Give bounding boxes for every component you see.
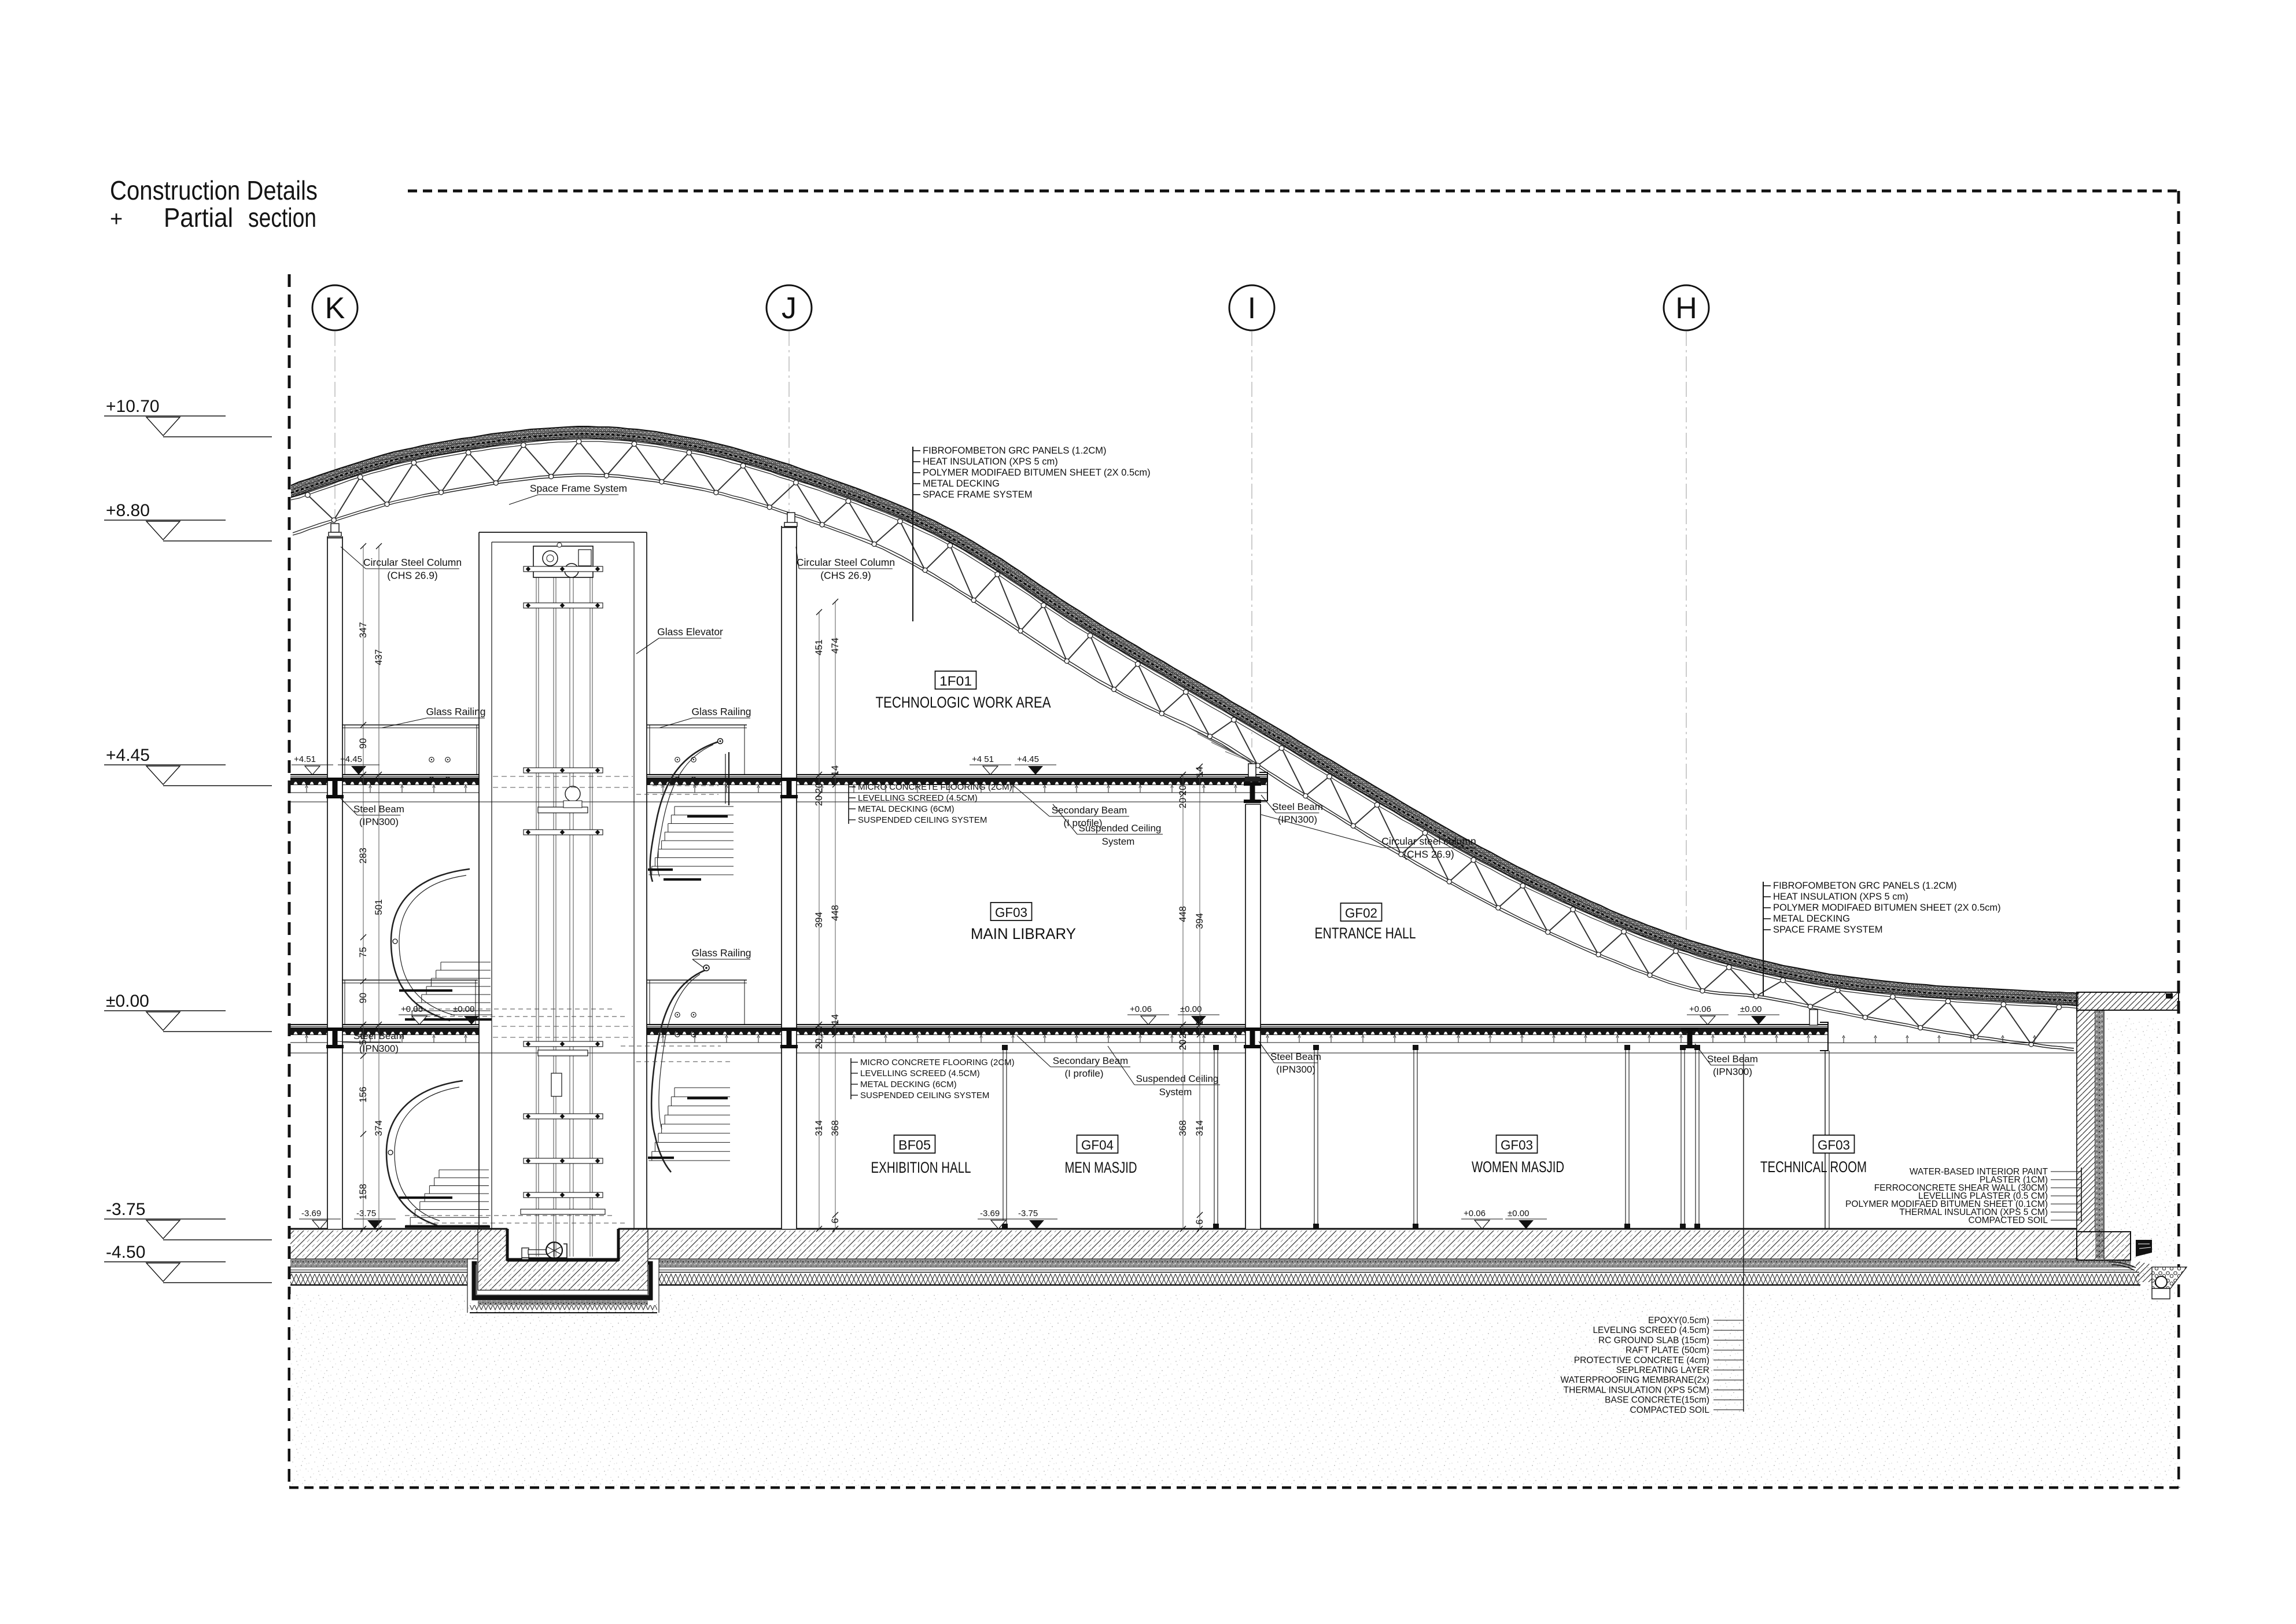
svg-text:SUSPENDED CEILING SYSTEM: SUSPENDED CEILING SYSTEM [860, 1091, 989, 1100]
svg-text:(CHS 26.9): (CHS 26.9) [387, 570, 438, 581]
svg-text:474: 474 [830, 638, 841, 654]
svg-text:I: I [1248, 292, 1256, 325]
svg-text:448: 448 [830, 905, 841, 921]
svg-text:374: 374 [374, 1120, 384, 1136]
svg-text:SPACE FRAME SYSTEM: SPACE FRAME SYSTEM [1773, 925, 1882, 935]
svg-text:1F01: 1F01 [939, 673, 972, 688]
svg-text:FIBROFOMBETON GRC PANELS (1.2: FIBROFOMBETON GRC PANELS (1.2CM) [923, 445, 1107, 456]
svg-text:283: 283 [358, 848, 368, 864]
svg-text:368: 368 [830, 1120, 841, 1136]
svg-text:ENTRANCE HALL: ENTRANCE HALL [1315, 925, 1416, 942]
svg-text:Circular steel column: Circular steel column [1381, 835, 1476, 847]
svg-text:+4.45: +4.45 [106, 746, 150, 765]
svg-text:+10.70: +10.70 [106, 397, 160, 416]
svg-text:156: 156 [358, 1087, 368, 1103]
svg-text:Secondary Beam: Secondary Beam [1052, 805, 1127, 816]
svg-text:BF05: BF05 [898, 1137, 931, 1152]
svg-text:GF04: GF04 [1081, 1137, 1114, 1152]
svg-text:Steel Beam: Steel Beam [1272, 801, 1323, 812]
svg-text:20: 20 [1178, 1040, 1188, 1050]
svg-text:METAL DECKING (6CM): METAL DECKING (6CM) [858, 804, 954, 814]
svg-text:Steel Beam: Steel Beam [1707, 1054, 1758, 1065]
svg-text:6: 6 [1195, 1219, 1205, 1224]
svg-text:±0.00: ±0.00 [1180, 1004, 1202, 1014]
svg-text:GF03: GF03 [995, 905, 1027, 920]
svg-text:501: 501 [374, 899, 384, 915]
svg-text:FIBROFOMBETON GRC PANELS (1.2: FIBROFOMBETON GRC PANELS (1.2CM) [1773, 881, 1957, 891]
svg-text:90: 90 [358, 738, 368, 749]
svg-text:WATERPROOFING MEMBRANE(2x): WATERPROOFING MEMBRANE(2x) [1561, 1375, 1709, 1385]
svg-text:section: section [248, 202, 316, 233]
svg-text:Partial: Partial [164, 202, 233, 233]
svg-text:314: 314 [1195, 1120, 1205, 1136]
svg-text:SEPLREATING LAYER: SEPLREATING LAYER [1616, 1365, 1709, 1375]
svg-text:54: 54 [358, 1034, 368, 1045]
svg-text:158: 158 [358, 1184, 368, 1200]
svg-text:K: K [325, 292, 345, 325]
svg-text:-4.50: -4.50 [106, 1243, 145, 1262]
svg-text:LEVELLING SCREED (4.5CM): LEVELLING SCREED (4.5CM) [860, 1069, 980, 1078]
svg-text:314: 314 [814, 1120, 824, 1136]
svg-text:System: System [1159, 1087, 1192, 1098]
svg-text:H: H [1675, 292, 1697, 325]
svg-text:20: 20 [1178, 798, 1188, 808]
svg-text:GF03: GF03 [1501, 1137, 1533, 1152]
svg-text:Space Frame System: Space Frame System [530, 483, 627, 494]
svg-text:TECHNICAL ROOM: TECHNICAL ROOM [1760, 1158, 1867, 1176]
svg-text:75: 75 [358, 947, 368, 958]
svg-text:+0.06: +0.06 [1130, 1004, 1152, 1014]
svg-text:Glass Railing: Glass Railing [426, 706, 485, 717]
svg-text:MAIN LIBRARY: MAIN LIBRARY [971, 925, 1076, 942]
svg-text:Glass Railing: Glass Railing [691, 706, 751, 717]
svg-text:+8.80: +8.80 [106, 501, 150, 520]
svg-text:POLYMER MODIFAED BITUMEN SHEET: POLYMER MODIFAED BITUMEN SHEET (2X 0.5cm… [923, 467, 1151, 478]
svg-text:Suspended Ceiling: Suspended Ceiling [1136, 1073, 1219, 1084]
svg-text:-3.75: -3.75 [356, 1209, 376, 1218]
svg-text:14: 14 [830, 1014, 841, 1025]
svg-text:394: 394 [814, 912, 824, 928]
svg-text:MICRO CONCRETE FLOORING (2CM): MICRO CONCRETE FLOORING (2CM) [858, 782, 1012, 792]
svg-text:RC GROUND SLAB (15cm): RC GROUND SLAB (15cm) [1598, 1335, 1709, 1345]
svg-text:Circular Steel Column: Circular Steel Column [363, 557, 462, 568]
svg-text:±0.00: ±0.00 [1508, 1209, 1529, 1218]
svg-text:Suspended Ceiling: Suspended Ceiling [1079, 823, 1162, 834]
svg-text:(IPN300): (IPN300) [1713, 1066, 1752, 1077]
svg-text:20: 20 [814, 796, 824, 806]
svg-text:System: System [1102, 836, 1135, 847]
svg-text:368: 368 [1178, 1120, 1188, 1136]
svg-text:(IPN300): (IPN300) [1278, 814, 1317, 825]
svg-text:EPOXY(0.5cm): EPOXY(0.5cm) [1648, 1316, 1709, 1325]
svg-text:6: 6 [830, 1218, 841, 1223]
svg-text:+4.45: +4.45 [1017, 754, 1039, 764]
svg-text:MICRO CONCRETE FLOORING (2CM): MICRO CONCRETE FLOORING (2CM) [860, 1058, 1015, 1067]
svg-text:20: 20 [814, 783, 824, 793]
svg-text:14: 14 [1195, 767, 1205, 777]
svg-text:Steel Beam: Steel Beam [1270, 1051, 1321, 1062]
svg-text:Construction Details: Construction Details [110, 175, 318, 205]
svg-text:(IPN300): (IPN300) [1276, 1064, 1315, 1075]
svg-text:METAL DECKING: METAL DECKING [1773, 914, 1850, 924]
svg-text:347: 347 [358, 622, 368, 638]
svg-text:METAL DECKING (6CM): METAL DECKING (6CM) [860, 1080, 957, 1089]
svg-text:+4.45: +4.45 [340, 754, 362, 764]
svg-text:THERMAL INSULATION (XPS 5CM): THERMAL INSULATION (XPS 5CM) [1564, 1385, 1709, 1395]
svg-text:20: 20 [814, 1026, 824, 1036]
svg-text:Secondary Beam: Secondary Beam [1053, 1055, 1128, 1066]
svg-text:HEAT INSULATION (XPS 5 cm): HEAT INSULATION (XPS 5 cm) [1773, 892, 1908, 902]
svg-text:BASE CONCRETE(15cm): BASE CONCRETE(15cm) [1605, 1395, 1709, 1405]
svg-text:(CHS 26.9): (CHS 26.9) [1403, 849, 1454, 860]
svg-text:Circular Steel Column: Circular Steel Column [797, 557, 895, 568]
svg-text:COMPACTED SOIL: COMPACTED SOIL [1968, 1216, 2048, 1225]
svg-text:GF02: GF02 [1345, 905, 1377, 920]
svg-text:METAL DECKING: METAL DECKING [923, 478, 1000, 489]
svg-text:-3.75: -3.75 [1018, 1209, 1038, 1218]
svg-text:EXHIBITION HALL: EXHIBITION HALL [871, 1159, 971, 1176]
svg-text:HEAT INSULATION (XPS 5 cm): HEAT INSULATION (XPS 5 cm) [923, 456, 1058, 467]
svg-text:SUSPENDED CEILING SYSTEM: SUSPENDED CEILING SYSTEM [858, 815, 987, 825]
svg-text:+0.06: +0.06 [1689, 1004, 1711, 1014]
svg-text:LEVELING SCREED (4.5cm): LEVELING SCREED (4.5cm) [1593, 1325, 1709, 1335]
svg-text:POLYMER MODIFAED BITUMEN SHEET: POLYMER MODIFAED BITUMEN SHEET (2X 0.5cm… [1773, 903, 2001, 913]
svg-text:(I profile): (I profile) [1064, 1068, 1103, 1079]
svg-text:RAFT PLATE (50cm): RAFT PLATE (50cm) [1626, 1346, 1709, 1356]
svg-text:(CHS 26.9): (CHS 26.9) [820, 570, 871, 581]
svg-text:WOMEN MASJID: WOMEN MASJID [1472, 1158, 1564, 1176]
svg-text:GF03: GF03 [1818, 1137, 1850, 1152]
svg-text:±0.00: ±0.00 [453, 1004, 474, 1014]
svg-text:448: 448 [1178, 906, 1188, 922]
svg-text:+4.51: +4.51 [294, 754, 316, 764]
svg-text:±0.00: ±0.00 [1740, 1004, 1761, 1014]
svg-text:20: 20 [1178, 1028, 1188, 1039]
svg-text:451: 451 [814, 639, 824, 656]
svg-text:J: J [782, 292, 797, 325]
svg-text:LEVELLING SCREED (4.5CM): LEVELLING SCREED (4.5CM) [858, 793, 978, 803]
svg-text:SPACE FRAME SYSTEM: SPACE FRAME SYSTEM [923, 489, 1032, 500]
svg-text:Glass Elevator: Glass Elevator [657, 626, 723, 638]
svg-text:Glass Railing: Glass Railing [691, 947, 751, 959]
svg-text:±0.00: ±0.00 [106, 992, 149, 1011]
svg-text:394: 394 [1195, 913, 1205, 929]
svg-text:MEN MASJID: MEN MASJID [1065, 1159, 1137, 1176]
svg-text:-3.69: -3.69 [980, 1209, 1000, 1218]
svg-text:+0.06: +0.06 [1464, 1209, 1486, 1218]
svg-text:-3.75: -3.75 [106, 1200, 145, 1219]
svg-text:PROTECTIVE CONCRETE (4cm): PROTECTIVE CONCRETE (4cm) [1574, 1356, 1709, 1365]
svg-text:20: 20 [814, 1039, 824, 1049]
svg-text:+4 51: +4 51 [972, 754, 994, 764]
svg-text:90: 90 [358, 993, 368, 1003]
svg-text:+0.06: +0.06 [401, 1004, 423, 1014]
svg-text:TECHNOLOGIC WORK AREA: TECHNOLOGIC WORK AREA [876, 694, 1051, 711]
svg-text:+: + [110, 207, 123, 231]
svg-text:437: 437 [374, 649, 384, 665]
svg-text:COMPACTED SOIL: COMPACTED SOIL [1630, 1405, 1709, 1415]
svg-text:-3.69: -3.69 [301, 1209, 321, 1218]
